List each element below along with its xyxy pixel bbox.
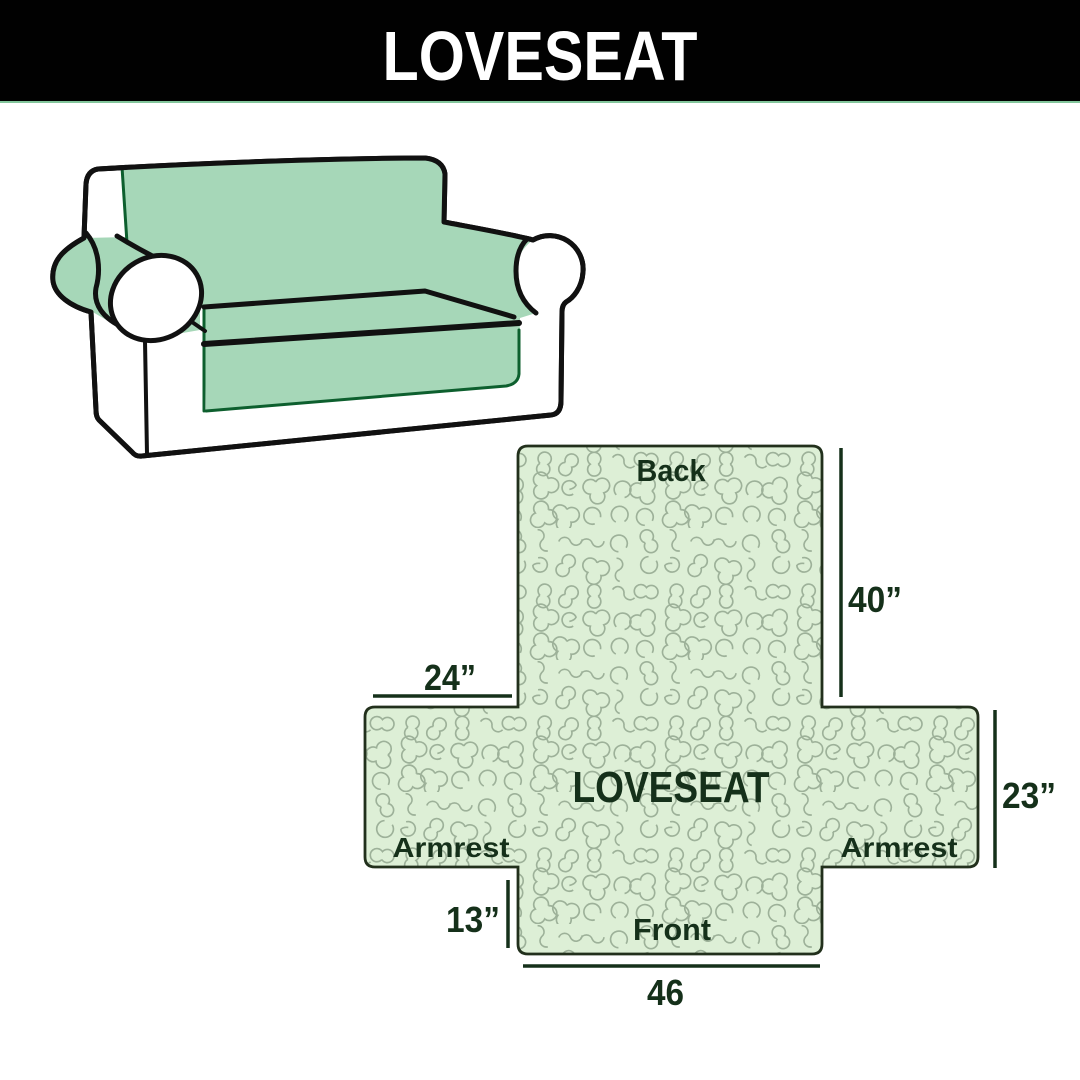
svg-text:LOVESEAT: LOVESEAT (383, 17, 698, 95)
svg-text:Back: Back (637, 453, 707, 488)
svg-text:Armrest: Armrest (841, 832, 958, 863)
svg-text:Armrest: Armrest (393, 832, 510, 863)
svg-text:40”: 40” (848, 579, 902, 620)
svg-text:LOVESEAT: LOVESEAT (573, 763, 770, 812)
svg-text:13”: 13” (446, 899, 500, 940)
svg-text:23”: 23” (1002, 775, 1056, 816)
svg-text:46: 46 (647, 972, 684, 1013)
svg-text:Front: Front (633, 912, 711, 947)
svg-text:24”: 24” (424, 657, 476, 698)
